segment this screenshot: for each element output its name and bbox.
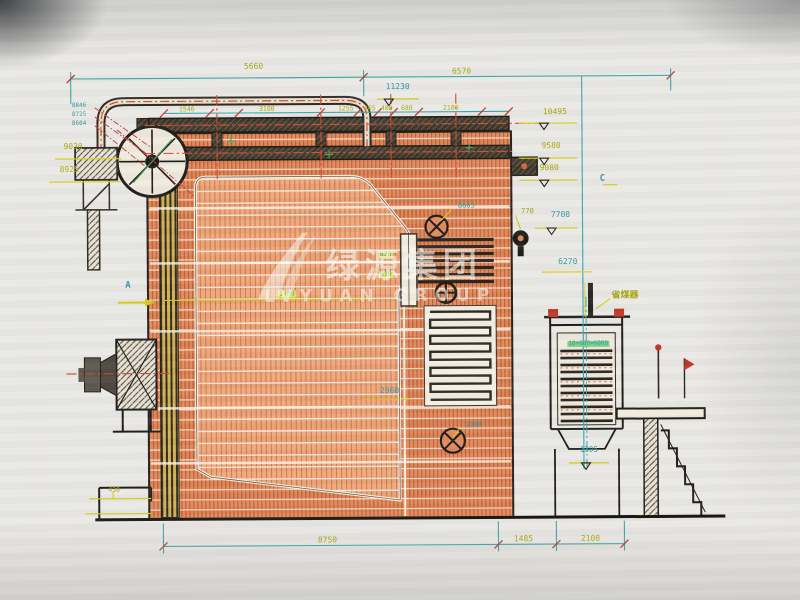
- dim-bottom-3: 2100: [581, 535, 600, 543]
- drawing-sheet: 5660 6570 11230 1546 3100 1255 465 480 6…: [0, 0, 800, 600]
- label-8603: 8603: [458, 203, 475, 210]
- dim-header-2: 3100: [259, 106, 275, 113]
- elevation-7708: 7708: [551, 211, 570, 219]
- elevation-stack-3: 8604: [72, 121, 86, 127]
- elevation-9580: 9580: [541, 142, 560, 150]
- section-mark-c: C: [600, 175, 605, 184]
- elevation-1305: 1305: [580, 446, 598, 454]
- label-economizer-cn: 省煤器: [611, 292, 638, 301]
- dim-bottom-1: 8750: [318, 536, 337, 544]
- dim-header-4: 465: [364, 105, 376, 112]
- label-430: 430: [108, 487, 120, 494]
- elevation-stack-2: 8725: [72, 112, 86, 118]
- drawing-labels: 5660 6570 11230 1546 3100 1255 465 480 6…: [0, 0, 800, 600]
- dim-top-right: 6570: [452, 68, 471, 76]
- dim-header-7: 2180: [443, 105, 459, 112]
- label-2100-rear: 2100: [466, 422, 482, 429]
- dim-header-6: 680: [401, 105, 413, 112]
- label-exit-upper: 620: [379, 251, 393, 258]
- elevation-9030: 9030: [63, 143, 82, 151]
- elevation-11230: 11230: [386, 83, 410, 91]
- label-770: 770: [521, 208, 534, 215]
- elevation-9080: 9080: [540, 164, 559, 172]
- dim-top-left: 5660: [244, 63, 263, 71]
- dim-bottom-2: 1485: [514, 535, 533, 543]
- label-1480: 1480: [278, 291, 296, 298]
- dim-header-5: 480: [381, 105, 393, 112]
- dim-header-3: 1255: [338, 105, 354, 112]
- label-2960: 2960: [380, 387, 399, 395]
- label-econ-tubes: 10×600=6000: [567, 341, 609, 347]
- section-mark-a: A: [125, 282, 130, 291]
- elevation-6270: 6270: [558, 258, 577, 266]
- elevation-stack-1: 8846: [72, 103, 86, 109]
- dim-header-1: 1546: [179, 106, 195, 113]
- elevation-8925: 8925: [60, 166, 79, 174]
- label-exit-lower: 610: [379, 271, 393, 278]
- elevation-10495: 10495: [543, 108, 567, 116]
- photo-of-boiler-drawing: { "watermark": { "cn": "绿源集团", "en": "LV…: [0, 0, 800, 600]
